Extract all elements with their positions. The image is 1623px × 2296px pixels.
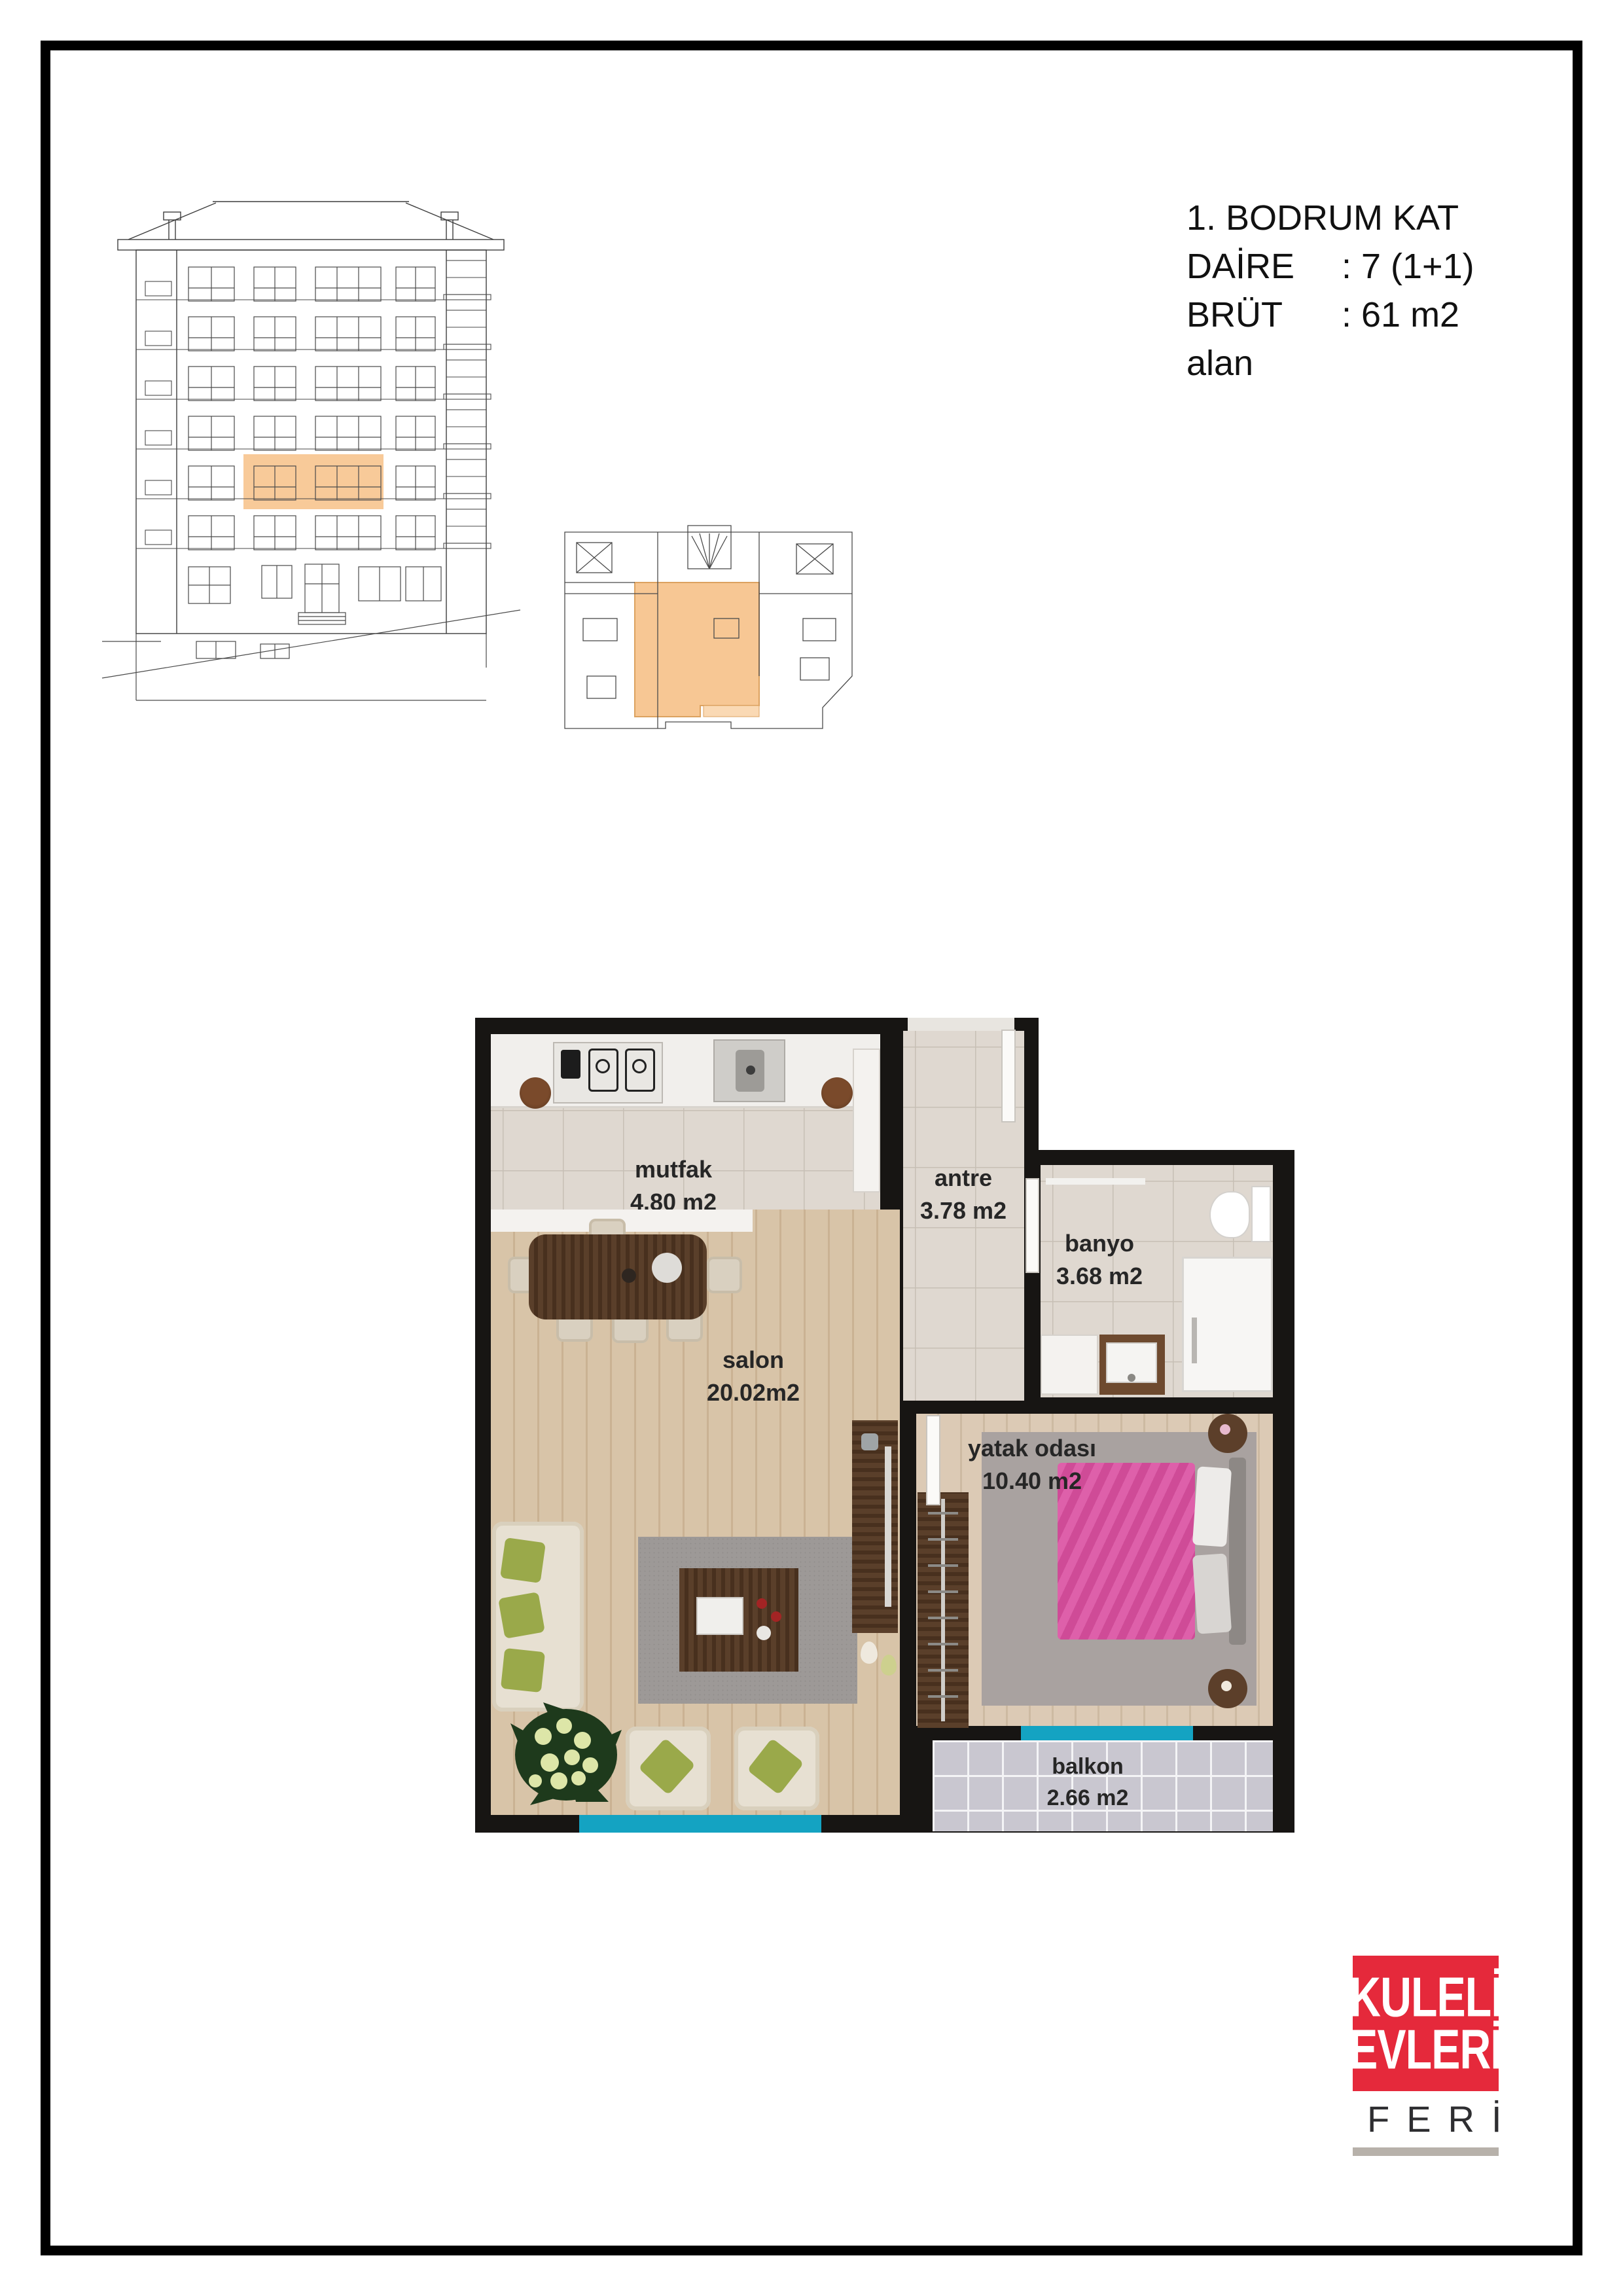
floor-vase (861, 1641, 878, 1664)
room-livingroom: salon20.02m2 (491, 1210, 900, 1815)
washing-machine (1041, 1335, 1098, 1395)
room-bedroom: yatak odası10.40 m2 (916, 1414, 1273, 1726)
bathroom-label: banyo3.68 m2 (1021, 1227, 1178, 1293)
kitchen-label: mutfak4.80 m2 (588, 1153, 758, 1219)
daire-label: DAİRE (1186, 242, 1342, 291)
daire-value: : 7 (1+1) (1342, 242, 1474, 291)
dining-chair (707, 1257, 742, 1293)
entrance-door (1001, 1030, 1016, 1122)
key-plan-svg (560, 520, 857, 736)
elevation-svg (98, 183, 524, 720)
stove (553, 1042, 663, 1103)
dining-table (529, 1234, 707, 1319)
building-elevation-drawing (98, 183, 524, 720)
brut-value: : 61 m2 (1342, 291, 1459, 387)
logo-underline (1353, 2147, 1499, 2156)
kitchen-sink (713, 1039, 785, 1102)
bedroom-label: yatak odası10.40 m2 (934, 1432, 1130, 1498)
floor-vase (881, 1655, 897, 1676)
toilet (1251, 1186, 1271, 1242)
tv-unit (852, 1420, 898, 1633)
brand-logo: KULELİ EVLERİ (1353, 1956, 1499, 2091)
fridge (853, 1049, 880, 1193)
antre-label: antre3.78 m2 (904, 1162, 1022, 1227)
sofa (492, 1522, 584, 1712)
logo-line2: EVLERİ (1349, 2018, 1503, 2080)
logo-subtitle: FERİ (1350, 2098, 1502, 2140)
bathroom-vanity (1099, 1335, 1165, 1395)
armchair (626, 1727, 711, 1810)
towel-rail (1046, 1178, 1145, 1185)
key-plan-highlight (635, 583, 759, 717)
elevation-highlight (243, 454, 383, 509)
wardrobe (918, 1492, 969, 1728)
livingroom-window (579, 1815, 821, 1833)
armchair (734, 1727, 819, 1810)
brochure-page: { "header": { "floor": "1. BODRUM KAT", … (0, 0, 1623, 2296)
brut-label: BRÜT alan (1186, 291, 1342, 387)
room-balcony: balkon2.66 m2 (933, 1740, 1273, 1831)
shower (1182, 1257, 1273, 1392)
key-plan-drawing (560, 520, 857, 736)
nightstand (1208, 1669, 1247, 1708)
counter-plant (520, 1077, 551, 1109)
toilet-bowl (1209, 1191, 1250, 1238)
nightstand (1208, 1414, 1247, 1453)
outside-area (1039, 1018, 1294, 1150)
plant (504, 1697, 628, 1815)
bed-headboard (1229, 1458, 1246, 1645)
counter-plant (821, 1077, 853, 1109)
balcony-label: balkon2.66 m2 (1009, 1751, 1166, 1814)
livingroom-label: salon20.02m2 (668, 1344, 838, 1409)
room-bathroom: banyo3.68 m2 (1041, 1165, 1273, 1397)
room-kitchen: mutfak4.80 m2 (491, 1034, 880, 1210)
floor-plan: mutfak4.80 m2 antre3.78 m2 banyo3.68 m2 (475, 1018, 1294, 1833)
entrance-threshold (908, 1018, 1014, 1031)
bed-pillow (1192, 1553, 1232, 1634)
coffee-table (679, 1568, 798, 1672)
daire-row: DAİRE : 7 (1+1) (1186, 242, 1553, 291)
brut-row: BRÜT alan : 61 m2 (1186, 291, 1553, 387)
bedroom-door (926, 1415, 940, 1505)
unit-info-header: 1. BODRUM KAT DAİRE : 7 (1+1) BRÜT alan … (1186, 194, 1553, 387)
bed-pillow (1192, 1466, 1232, 1547)
bathroom-door (1026, 1178, 1039, 1273)
bedroom-window (1021, 1726, 1193, 1740)
floor-title: 1. BODRUM KAT (1186, 194, 1553, 242)
